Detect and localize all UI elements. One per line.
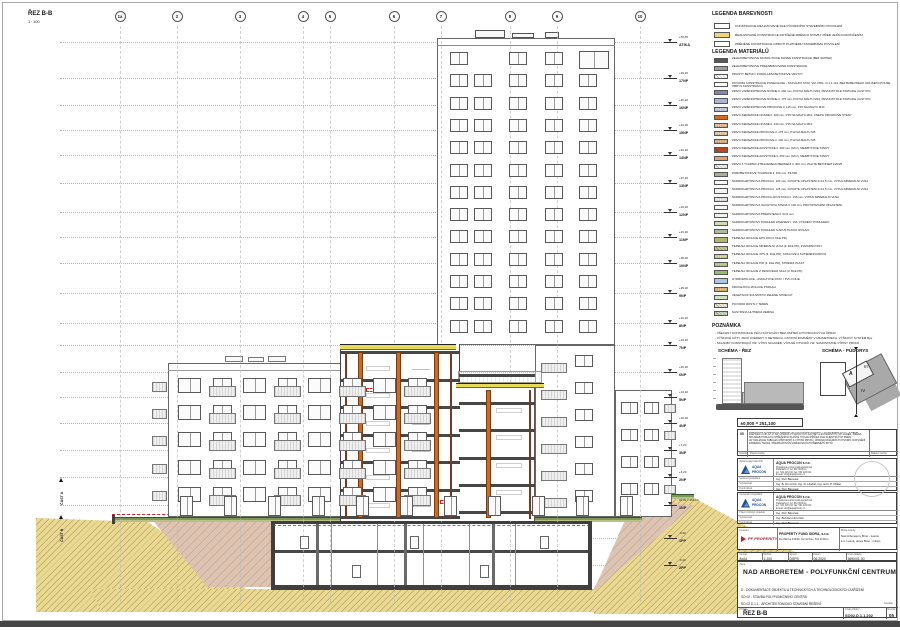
level-label: 15NP xyxy=(679,131,688,135)
level-label: 9NP xyxy=(679,294,686,298)
window xyxy=(509,208,527,221)
roof-railing-detail xyxy=(248,357,264,362)
window-mullion xyxy=(459,254,460,265)
legend-material-label: ŽELEZOBETONOVÉ PREFABRIKOVANÉ KONSTRUKCE xyxy=(732,65,895,68)
legend-material-swatch xyxy=(714,213,728,218)
window-mullion xyxy=(588,142,589,153)
project-line: SO 02 - STAVBA POLYFUNKČNÍHO CENTRA xyxy=(741,595,807,599)
window-mullion xyxy=(630,403,631,413)
window-mullion xyxy=(352,406,353,413)
window-mullion xyxy=(385,379,386,392)
level-tick-arrow-icon xyxy=(668,180,672,183)
window-mullion xyxy=(588,98,589,109)
window-mullion xyxy=(518,98,519,109)
basement-door xyxy=(540,536,549,549)
room-detail xyxy=(496,435,522,440)
window-mullion xyxy=(483,187,484,198)
window-mullion xyxy=(483,321,484,332)
legend-color-label: ZMĚNĚNÉ KONSTRUKCE OPROTI PLATNÉMU STAVE… xyxy=(735,42,840,46)
level-tick-arrow-icon xyxy=(668,209,672,212)
window-mullion xyxy=(518,298,519,309)
window-mullion xyxy=(190,379,191,392)
level-tick-arrow-icon xyxy=(668,127,672,130)
window xyxy=(474,208,492,221)
legend-materials-heading: LEGENDA MATERIÁLŮ xyxy=(712,49,769,55)
part-arrow-icon xyxy=(59,515,63,519)
aqua-logo-text: PROCON xyxy=(752,470,766,474)
legend-material-swatch xyxy=(714,237,728,242)
window xyxy=(474,275,492,288)
window-mullion xyxy=(588,298,589,309)
part-label-b: ČÁST B xyxy=(60,529,64,542)
scheme-plan-block xyxy=(820,362,846,396)
window xyxy=(545,97,563,110)
window xyxy=(308,432,331,447)
section-arrow-icon xyxy=(854,347,858,350)
room-detail xyxy=(366,393,390,398)
cell-divider xyxy=(738,515,898,516)
window-mullion xyxy=(554,75,555,86)
level-tick xyxy=(664,450,677,451)
window xyxy=(621,456,638,468)
window-mullion xyxy=(319,497,320,515)
window-mullion xyxy=(255,406,256,419)
window xyxy=(545,52,563,65)
basement-door xyxy=(410,536,419,549)
legend-material-swatch xyxy=(714,303,728,308)
drawing-sheet: ŘEZ B-B 1 : 100 1a2345678910 xyxy=(0,0,900,630)
window-mullion xyxy=(190,461,191,474)
level-tick-arrow-icon xyxy=(668,447,672,450)
window xyxy=(509,119,527,132)
project-line: D - DOKUMENTACE OBJEKTU A TECHNICKÝCH A … xyxy=(741,588,864,592)
window-mullion xyxy=(407,497,408,515)
level-tick-arrow-icon xyxy=(668,369,672,372)
level-tick xyxy=(664,78,677,79)
level-elevation: +31,20 xyxy=(679,230,688,234)
scheme-section-ticks xyxy=(713,358,716,406)
legend-material-label: PROSTÝ BETON / PODKLADNÍ BETONOVÉ VRSTVY xyxy=(732,73,895,76)
window xyxy=(575,409,593,421)
cell-divider xyxy=(839,528,840,551)
firm-row-value: Ing. Petr Baranek xyxy=(776,521,799,525)
legend-material-swatch xyxy=(714,66,728,71)
revision-text: ZMĚNA DLE POŽADAVKŮ PŘEDANÝCH 31.03.2020… xyxy=(749,432,867,451)
level-elevation: +4,20 xyxy=(679,470,686,474)
window-mullion xyxy=(483,209,484,220)
drawing-title: ŘEZ B-B xyxy=(743,611,767,617)
properity-logo-text: PF PROPERITY xyxy=(748,536,777,541)
legend-material-label: PŮVODNÍ KONSTRUKCE PONECHANÉ - STÁVAJÍCÍ… xyxy=(732,82,895,88)
stamp-circle xyxy=(854,461,890,497)
akce-label: Akce xyxy=(740,563,746,566)
legend-material-label: SÁDROKARTONOVÁ PŘÍČKA tl. 100 mm, DVOJIT… xyxy=(732,180,895,183)
window xyxy=(509,186,527,199)
level-label: 10NP xyxy=(679,264,688,268)
window xyxy=(509,230,527,243)
grid-axis-line xyxy=(640,26,641,602)
window-mullion xyxy=(222,488,223,495)
window xyxy=(579,74,597,87)
param-label: Stupeň xyxy=(790,554,797,556)
scheme-low-block xyxy=(744,382,804,404)
window xyxy=(509,253,527,266)
grid-axis-line xyxy=(177,26,178,602)
window-mullion xyxy=(287,461,288,468)
revision-label: Revize xyxy=(888,608,896,611)
legend-color-swatch xyxy=(714,41,730,47)
level-elevation: +10,20 xyxy=(679,416,688,420)
window-mullion xyxy=(255,379,256,392)
window-mullion xyxy=(518,276,519,287)
floor-slab xyxy=(459,484,535,487)
window-mullion xyxy=(630,430,631,440)
cell-divider xyxy=(773,510,774,526)
window-mullion xyxy=(190,433,191,446)
legend-material-swatch xyxy=(714,205,728,210)
grid-axis-bubble: 3 xyxy=(235,11,246,22)
window xyxy=(450,119,468,132)
legend-material-swatch xyxy=(714,74,728,79)
revision-box: 05 ZMĚNA DLE POŽADAVKŮ PŘEDANÝCH 31.03.2… xyxy=(737,429,897,456)
window xyxy=(450,320,468,333)
firm-row-label: Kontroloval xyxy=(740,521,753,524)
legend-material-label: KROČEJOVÁ IZOLACE PODLAH xyxy=(732,286,895,289)
balcony xyxy=(274,468,301,479)
window-mullion xyxy=(554,254,555,265)
level-elevation: +49,20 xyxy=(679,71,688,75)
balcony xyxy=(152,409,167,419)
scheme-base xyxy=(716,404,804,410)
window-mullion xyxy=(459,187,460,198)
firm-company-name: AQUA PROCON s.r.o. xyxy=(776,461,811,465)
retaining-wall-stub xyxy=(112,515,115,524)
window-mullion xyxy=(352,488,353,495)
level-tick xyxy=(664,323,677,324)
window xyxy=(579,119,597,132)
grid-axis-bubble: 5 xyxy=(325,11,336,22)
level-tick xyxy=(664,477,677,478)
window xyxy=(545,320,563,333)
balcony xyxy=(541,390,567,400)
legend-material-swatch xyxy=(714,107,728,112)
window xyxy=(644,402,659,414)
window-mullion xyxy=(554,120,555,131)
window xyxy=(474,119,492,132)
window xyxy=(545,275,563,288)
window-mullion xyxy=(588,231,589,242)
tower-parapet-line xyxy=(437,45,615,46)
window-mullion xyxy=(518,209,519,220)
window xyxy=(450,275,468,288)
legend-material-swatch xyxy=(714,58,728,63)
window xyxy=(474,74,492,87)
level-elevation: +34,20 xyxy=(679,205,688,209)
level-tick xyxy=(664,505,677,506)
window xyxy=(545,186,563,199)
window xyxy=(545,119,563,132)
level-tick xyxy=(664,212,677,213)
grid-axis-bubble: 8 xyxy=(505,11,516,22)
window xyxy=(450,164,468,177)
legend-material-label: HYDROIZOLACE - ASFALTOVÉ PÁSY / PVC FÓLI… xyxy=(732,278,895,281)
legend-material-swatch xyxy=(714,188,728,193)
window-mullion xyxy=(630,484,631,494)
level-label: 12NP xyxy=(679,213,688,217)
legend-material-swatch xyxy=(714,262,728,267)
level-elevation: +7,20 xyxy=(679,443,686,447)
balcony xyxy=(664,404,676,413)
legend-color-swatch xyxy=(714,23,730,29)
window xyxy=(474,320,492,333)
roof-insulation-terrace xyxy=(456,383,544,388)
level-tick-arrow-icon xyxy=(668,290,672,293)
window xyxy=(178,405,201,420)
window xyxy=(373,432,396,447)
window xyxy=(509,320,527,333)
legend-material-label: ZDIVO KERAMICKÉ NOSNÉ tl. 240 mm, P15 NA… xyxy=(732,123,895,126)
window xyxy=(180,496,193,516)
level-tick xyxy=(664,423,677,424)
window-mullion xyxy=(588,276,589,287)
level-label: ATIKA xyxy=(679,43,690,47)
window xyxy=(243,432,266,447)
window xyxy=(268,496,281,516)
level-tick-arrow-icon xyxy=(668,152,672,155)
window-mullion xyxy=(588,120,589,131)
floor-slab xyxy=(459,429,535,432)
balcony xyxy=(339,468,366,479)
soutisk-label: Soutisk xyxy=(884,602,893,605)
window xyxy=(532,496,545,516)
window-mullion xyxy=(554,231,555,242)
level-elevation: +25,20 xyxy=(679,286,688,290)
balcony xyxy=(274,386,301,397)
window-mullion xyxy=(554,276,555,287)
window-mullion xyxy=(483,298,484,309)
shaft-wall xyxy=(529,390,531,519)
window xyxy=(308,405,331,420)
window xyxy=(450,74,468,87)
basement-column xyxy=(404,524,407,585)
change-marking-line-basement xyxy=(273,525,590,526)
window xyxy=(450,230,468,243)
window xyxy=(243,487,266,502)
window-mullion xyxy=(652,430,653,440)
window-mullion xyxy=(518,231,519,242)
legend-material-label: TEPELNÁ IZOLACE Z PĚNOVÉHO SKLA (tl. DLE… xyxy=(732,270,895,273)
legend-material-swatch xyxy=(714,123,728,128)
legend-material-label: SÁDROKARTONOVÁ PŘÍČKA AKUSTICKÁ tl. 155 … xyxy=(732,196,895,199)
window-mullion xyxy=(320,433,321,446)
level-tick-arrow-icon xyxy=(668,102,672,105)
window xyxy=(579,208,597,221)
window xyxy=(243,378,266,393)
window xyxy=(373,405,396,420)
scheme-tower xyxy=(722,358,742,404)
param-label: Datum xyxy=(814,554,821,556)
grid-axis-bubble: 1a xyxy=(115,11,126,22)
level-tick xyxy=(664,538,677,539)
window xyxy=(474,186,492,199)
grid-axis-bubble: 9 xyxy=(552,11,563,22)
balcony xyxy=(152,491,167,501)
room-detail xyxy=(366,475,390,480)
window-mullion xyxy=(554,321,555,332)
window-mullion xyxy=(222,433,223,440)
window xyxy=(450,208,468,221)
level-elevation: +37,20 xyxy=(679,176,688,180)
window-mullion xyxy=(483,75,484,86)
balcony xyxy=(339,413,366,424)
window xyxy=(579,275,597,288)
level-tick-arrow-icon xyxy=(668,420,672,423)
legend-material-label: TEPELNÁ IZOLACE MINERÁLNÍ VLNA (tl. DLE … xyxy=(732,245,895,248)
window xyxy=(178,432,201,447)
basement-door xyxy=(352,565,361,578)
note-line: - VÝŠKOVÉ KÓTY JSOU UVEDENY V METRECH, O… xyxy=(715,336,872,340)
legend-material-swatch xyxy=(714,278,728,283)
basement-partition xyxy=(469,524,470,585)
scheme-plan-title: SCHÉMA - PŮDORYS xyxy=(822,348,868,353)
level-elevation: +46,20 xyxy=(679,98,688,102)
window xyxy=(356,496,369,516)
site-line: Nad Arboretem, Brno - Lesná xyxy=(841,534,879,538)
window-mullion xyxy=(584,410,585,420)
aqua-logo-text: AQUA xyxy=(752,498,761,502)
window xyxy=(509,275,527,288)
revision-footer-label: Datum revize xyxy=(871,452,887,455)
window-mullion xyxy=(554,298,555,309)
window xyxy=(474,164,492,177)
firm-row-label: Hlavní inženýr projektu xyxy=(740,511,765,514)
legend-material-label: TEPELNÁ IZOLACE EPS 100 (tl. DLE PD) xyxy=(732,237,895,240)
revision-code: 05 xyxy=(740,432,744,436)
window xyxy=(509,74,527,87)
balcony xyxy=(541,471,567,481)
grid-axis-line xyxy=(240,26,241,602)
balcony xyxy=(209,468,236,479)
legend-material-label: ŽELEZOBETONOVÉ MONOLITICKÉ NOSNÉ KONSTRU… xyxy=(732,57,895,60)
window xyxy=(450,297,468,310)
window xyxy=(312,496,325,516)
window-mullion xyxy=(518,187,519,198)
balcony xyxy=(664,485,676,494)
window-mullion xyxy=(255,488,256,501)
room-detail xyxy=(366,366,390,371)
window xyxy=(621,429,638,441)
window-mullion xyxy=(554,165,555,176)
window xyxy=(474,253,492,266)
scheme-plan-label-a: A xyxy=(849,371,853,377)
balcony xyxy=(339,386,366,397)
room-detail xyxy=(496,408,522,413)
basement-bottom-slab xyxy=(271,585,592,590)
legend-material-swatch xyxy=(714,180,728,185)
legend-material-swatch xyxy=(714,246,728,251)
floor-slab xyxy=(459,402,535,405)
cell-divider xyxy=(777,528,778,551)
basement-mid-slab xyxy=(275,550,588,553)
level-label: 1PP xyxy=(679,539,686,543)
window xyxy=(579,97,597,110)
window-mullion xyxy=(459,98,460,109)
legend-color-swatch xyxy=(714,32,730,38)
level-label: 2PP xyxy=(679,566,686,570)
legend-material-label: SÁDROKARTONOVÁ PŘÍČKA tl. 125 mm, DVOJIT… xyxy=(732,188,895,191)
scheme-section-title: SCHÉMA - ŘEZ xyxy=(718,348,751,353)
legend-material-swatch xyxy=(714,197,728,202)
window-mullion xyxy=(255,461,256,474)
level-tick-arrow-icon xyxy=(668,502,672,505)
notes-heading: POZNÁMKA xyxy=(712,323,741,329)
param-label: Měřítko xyxy=(764,554,772,556)
window xyxy=(620,496,633,516)
window-mullion xyxy=(459,321,460,332)
window-mullion xyxy=(518,75,519,86)
window xyxy=(545,230,563,243)
basement-partition xyxy=(377,524,378,585)
window-mullion xyxy=(554,209,555,220)
window-mullion xyxy=(584,464,585,474)
window xyxy=(308,460,331,475)
window-mullion xyxy=(554,187,555,198)
window-mullion xyxy=(222,379,223,386)
window-mullion xyxy=(222,406,223,413)
grid-axis-line xyxy=(557,26,558,602)
rooftop-equipment xyxy=(512,33,534,38)
legend-material-swatch xyxy=(714,98,728,103)
legend-material-label: SÁDROKARTONOVÁ ŠACHTOVÁ STĚNA tl. 100 mm… xyxy=(732,204,895,207)
window xyxy=(579,230,597,243)
window-mullion xyxy=(417,488,418,495)
window xyxy=(621,483,638,495)
room-detail xyxy=(366,503,390,508)
rooftop-equipment xyxy=(475,30,505,38)
balcony xyxy=(209,386,236,397)
window xyxy=(373,487,396,502)
legend-material-swatch xyxy=(714,254,728,259)
basement-wall-right xyxy=(588,521,592,590)
window-mullion xyxy=(518,53,519,64)
level-tick xyxy=(664,105,677,106)
window xyxy=(178,460,201,475)
level-elevation: +16,20 xyxy=(679,365,688,369)
level-label: 17NP xyxy=(679,79,688,83)
window-mullion xyxy=(483,120,484,131)
window-mullion xyxy=(255,433,256,446)
grid-axis-line xyxy=(303,26,304,602)
window-mullion xyxy=(588,187,589,198)
window xyxy=(576,496,589,516)
window-mullion xyxy=(554,53,555,64)
revision-footer-label: Revize xyxy=(740,452,748,455)
window-mullion xyxy=(363,497,364,515)
window xyxy=(579,253,597,266)
window-mullion xyxy=(588,254,589,265)
sheet-bottom-edge xyxy=(0,621,900,627)
window-mullion xyxy=(554,98,555,109)
window xyxy=(509,141,527,154)
project-title: NAD ARBORETEM - POLYFUNKČNÍ CENTRUM xyxy=(743,569,896,576)
legend-material-label: NASYPANÁ HUTNĚNÁ ZEMINA xyxy=(732,311,895,314)
window-mullion xyxy=(385,433,386,446)
cut-masonry-column xyxy=(434,352,439,518)
cell-divider xyxy=(773,493,774,510)
window-mullion xyxy=(320,461,321,474)
basement-door xyxy=(300,536,309,549)
window-mullion xyxy=(539,497,540,515)
